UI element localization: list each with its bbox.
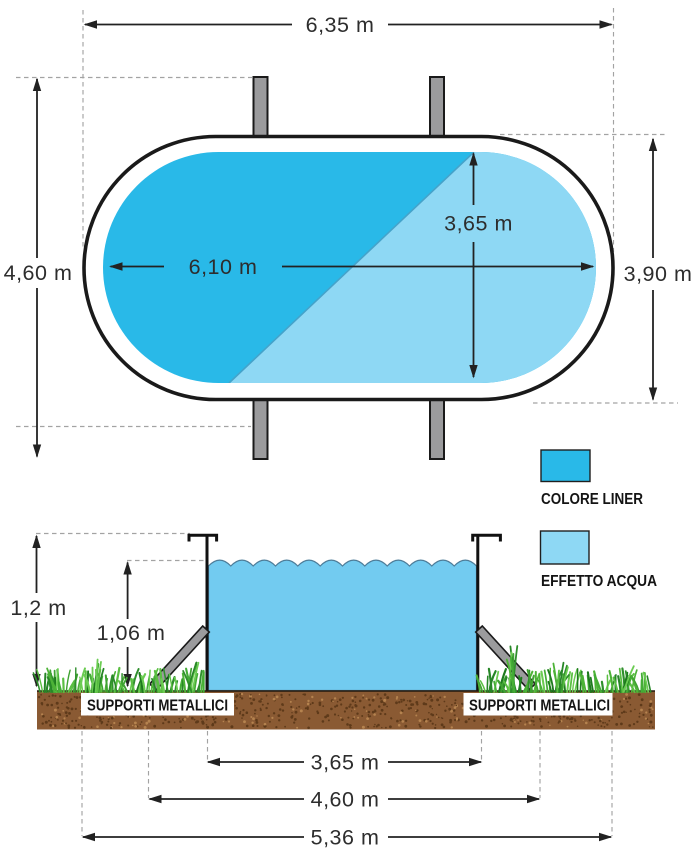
svg-text:COLORE LINER: COLORE LINER (541, 491, 643, 508)
svg-text:1,2 m: 1,2 m (10, 596, 66, 620)
svg-text:5,36 m: 5,36 m (311, 826, 380, 850)
svg-text:6,35 m: 6,35 m (306, 13, 375, 37)
svg-text:EFFETTO ACQUA: EFFETTO ACQUA (541, 573, 657, 590)
svg-text:1,06 m: 1,06 m (97, 621, 166, 645)
svg-text:4,60 m: 4,60 m (4, 261, 73, 285)
svg-text:6,10 m: 6,10 m (189, 255, 258, 279)
svg-text:SUPPORTI METALLICI: SUPPORTI METALLICI (469, 698, 610, 715)
svg-text:SUPPORTI METALLICI: SUPPORTI METALLICI (87, 698, 228, 715)
svg-text:3,65 m: 3,65 m (311, 751, 380, 775)
svg-text:3,65 m: 3,65 m (444, 212, 513, 236)
svg-text:3,90 m: 3,90 m (624, 262, 693, 286)
svg-text:4,60 m: 4,60 m (311, 788, 380, 812)
